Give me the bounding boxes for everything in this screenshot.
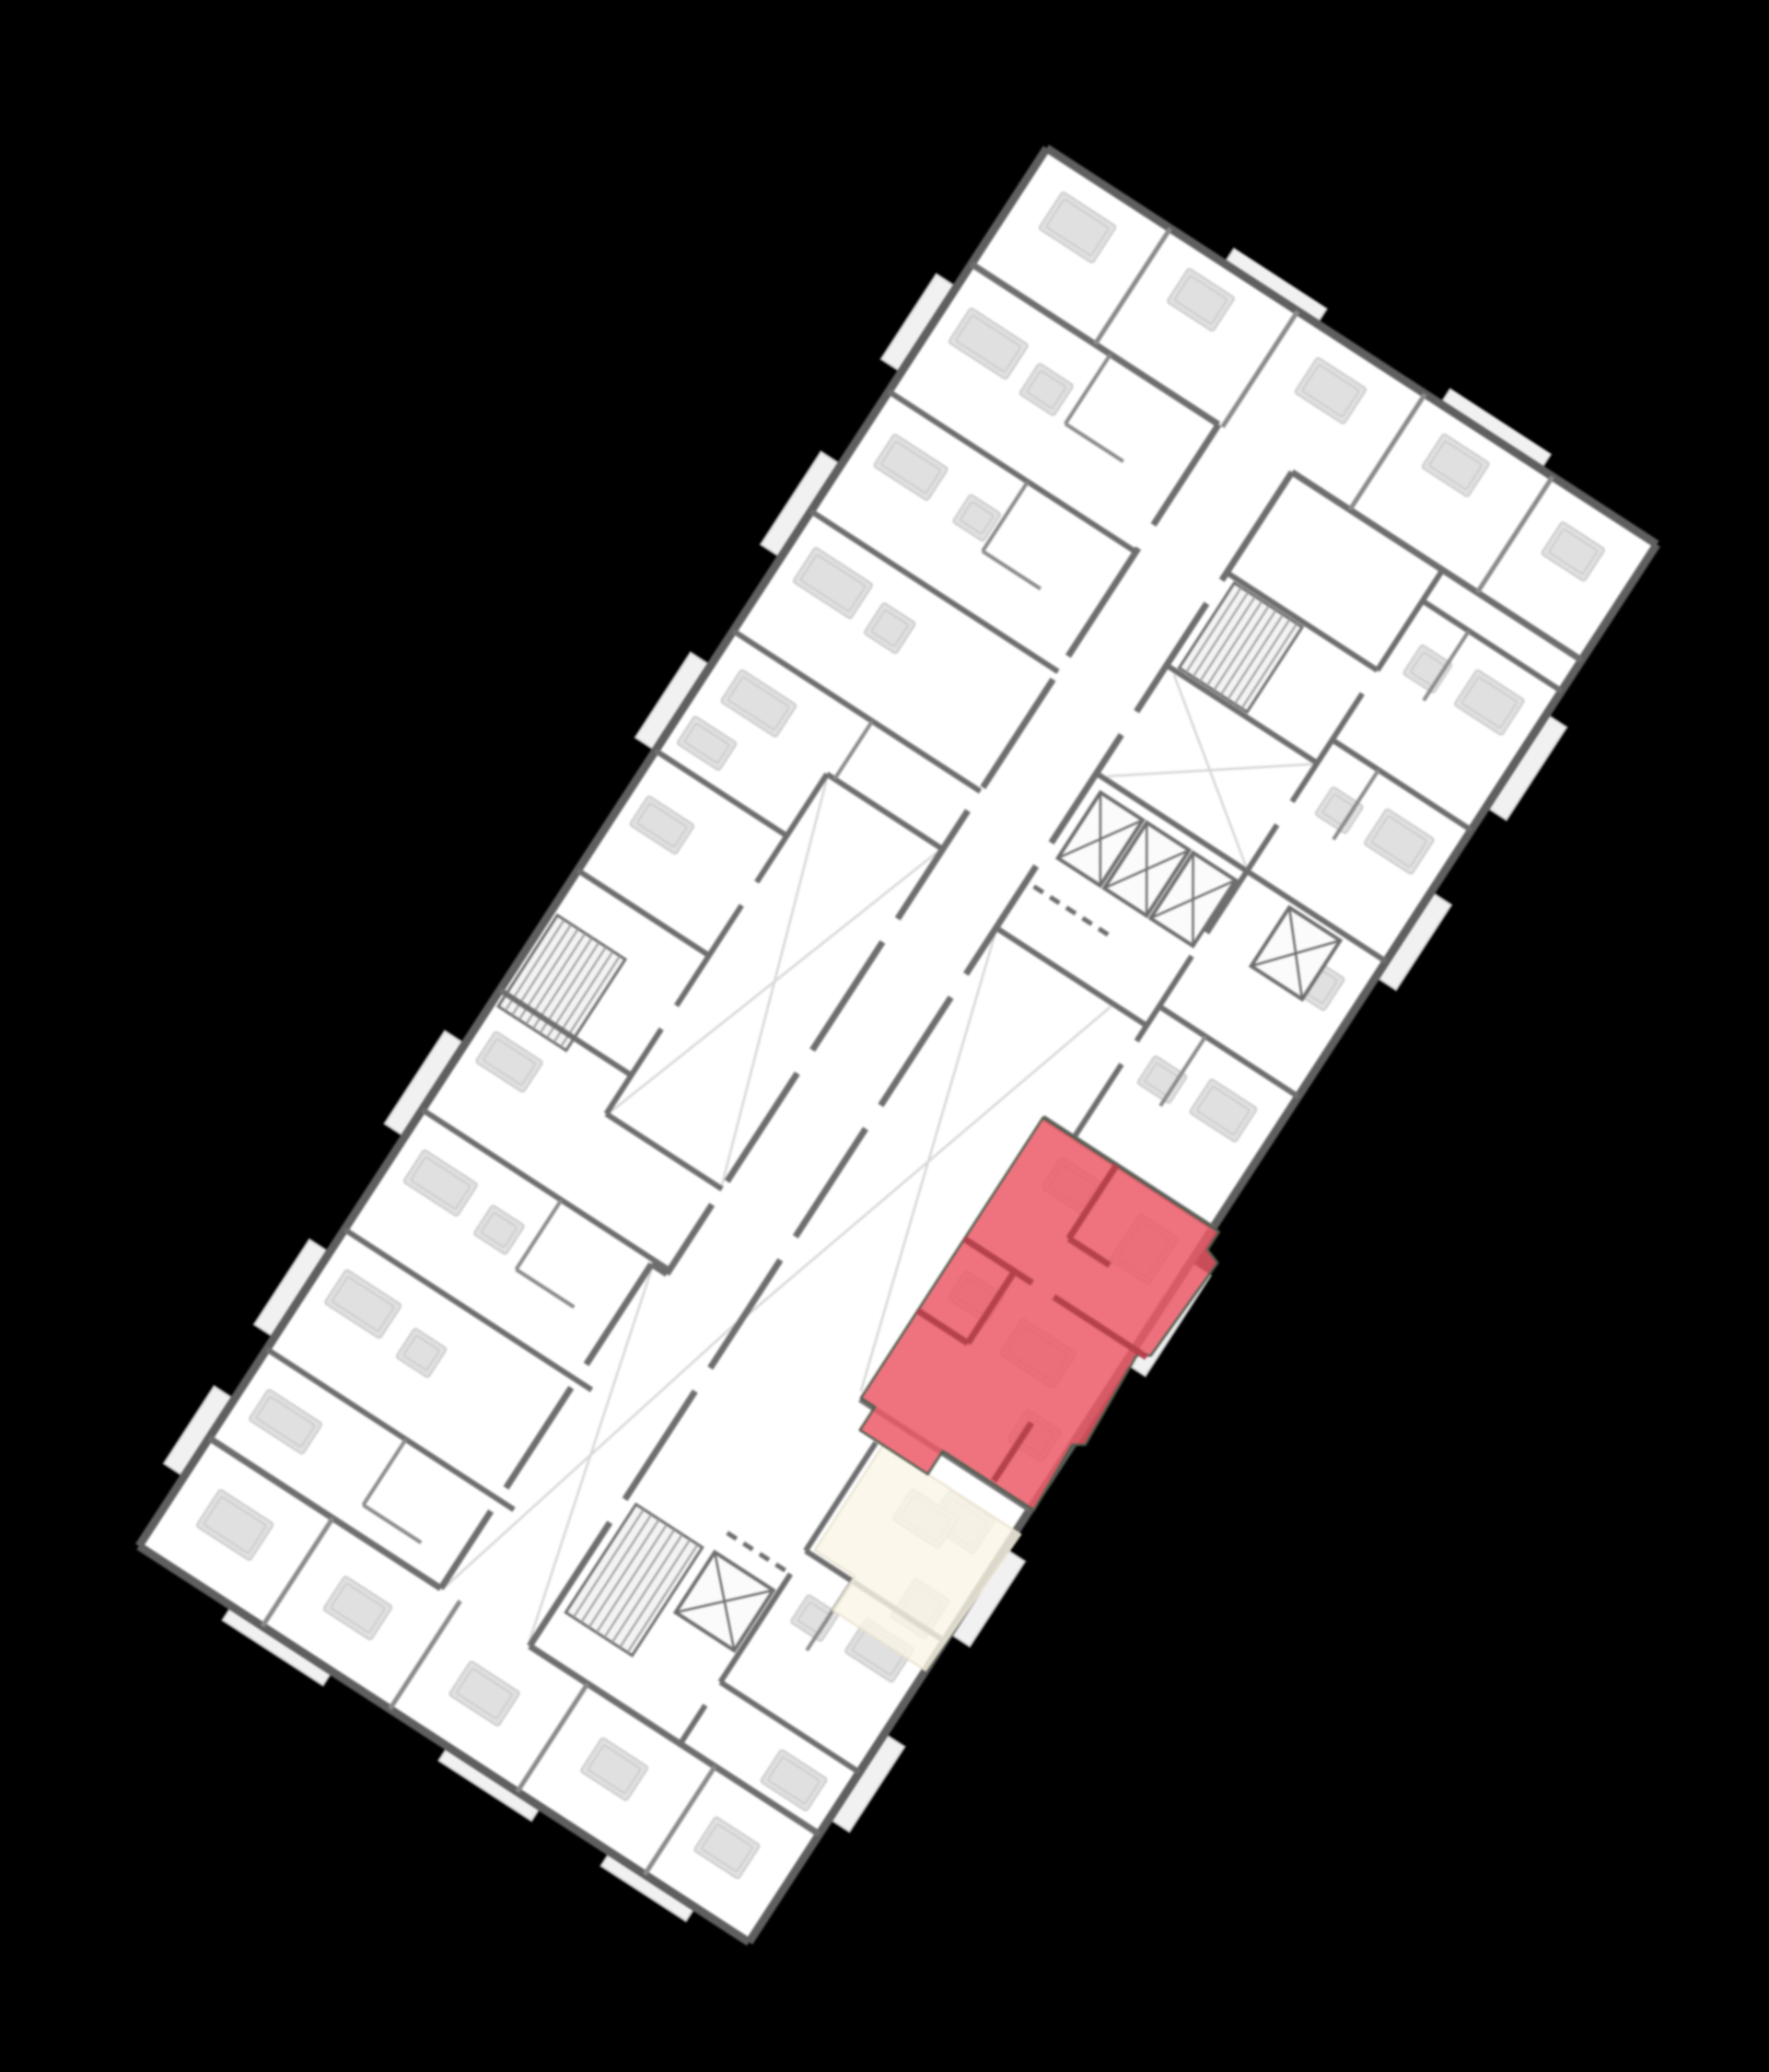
floor-plan[interactable] — [106, 118, 1690, 1973]
viewer-canvas — [0, 0, 1769, 2072]
floor-plan-svg[interactable] — [106, 118, 1690, 1973]
